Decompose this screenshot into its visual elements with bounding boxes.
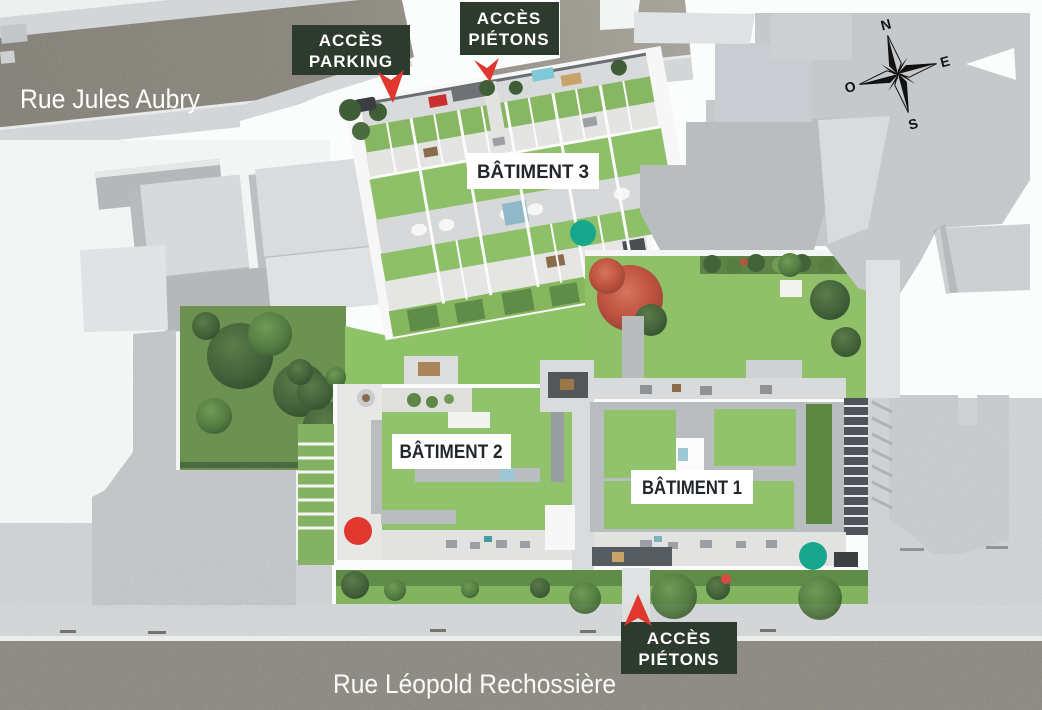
svg-text:BÂTIMENT 1: BÂTIMENT 1 xyxy=(642,477,742,499)
svg-text:ACCÈS: ACCÈS xyxy=(319,31,384,50)
svg-text:BÂTIMENT 3: BÂTIMENT 3 xyxy=(477,161,589,183)
svg-text:ACCÈS: ACCÈS xyxy=(477,9,542,28)
svg-text:PIÉTONS: PIÉTONS xyxy=(638,650,719,669)
svg-text:PIÉTONS: PIÉTONS xyxy=(468,30,549,49)
svg-text:PARKING: PARKING xyxy=(309,52,393,71)
svg-text:BÂTIMENT 2: BÂTIMENT 2 xyxy=(400,441,503,463)
svg-text:ACCÈS: ACCÈS xyxy=(647,629,712,648)
svg-text:Rue Jules Aubry: Rue Jules Aubry xyxy=(20,84,200,114)
